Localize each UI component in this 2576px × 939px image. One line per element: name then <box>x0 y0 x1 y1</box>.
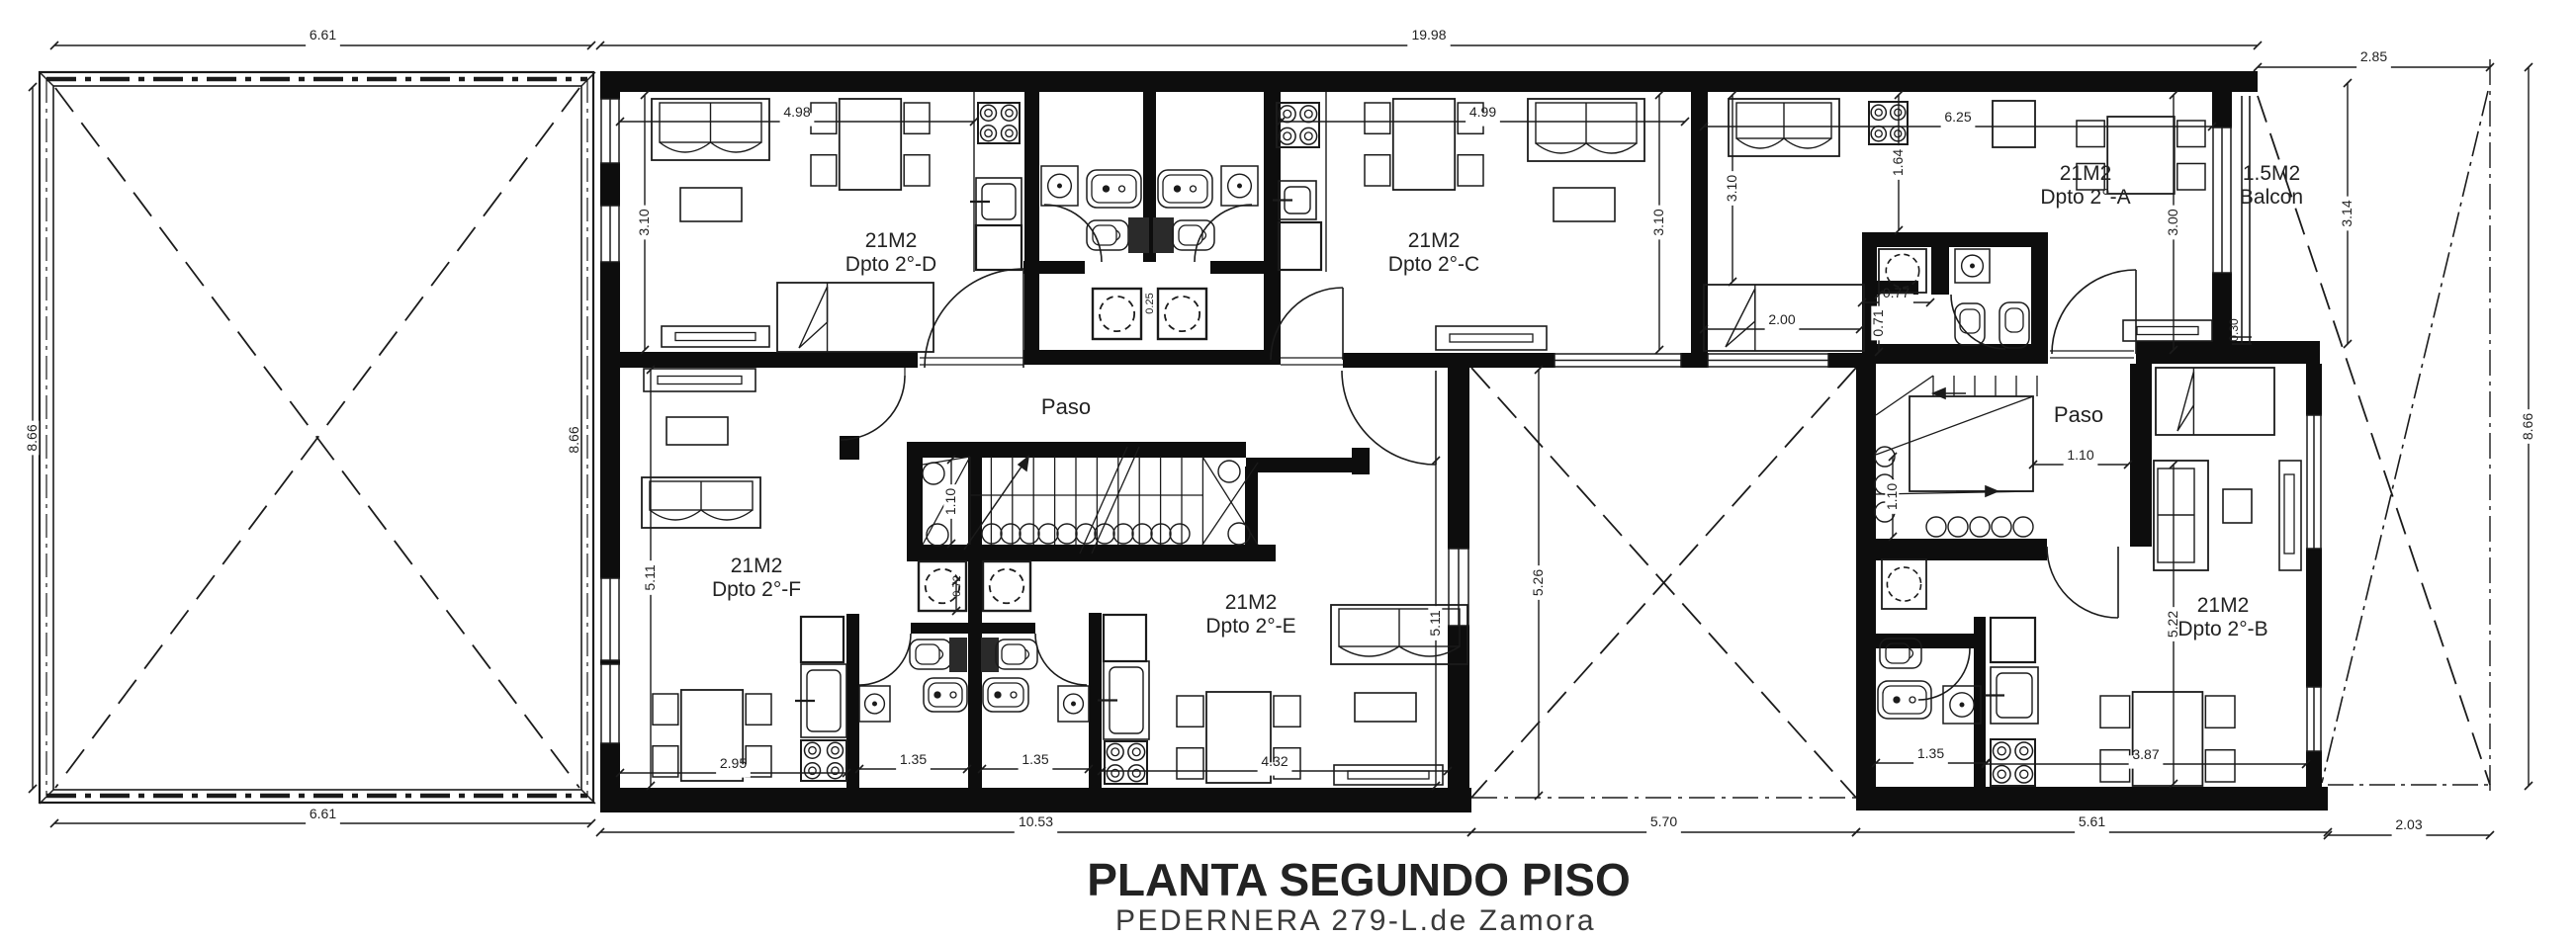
svg-text:Dpto 2°-D: Dpto 2°-D <box>845 253 936 276</box>
svg-text:2.03: 2.03 <box>2395 816 2422 832</box>
svg-text:4.99: 4.99 <box>1469 104 1496 120</box>
svg-text:1.10: 1.10 <box>942 488 958 515</box>
svg-text:5.70: 5.70 <box>1650 813 1677 829</box>
svg-text:Balcon: Balcon <box>2240 186 2303 209</box>
svg-text:5.11: 5.11 <box>1427 610 1443 636</box>
svg-text:5.11: 5.11 <box>642 564 658 590</box>
svg-text:0.30: 0.30 <box>2227 318 2241 342</box>
svg-text:Dpto 2°-B: Dpto 2°-B <box>2177 618 2267 640</box>
svg-text:21M2: 21M2 <box>2060 162 2112 185</box>
svg-text:1.10: 1.10 <box>1884 483 1900 510</box>
svg-text:0.77: 0.77 <box>1883 285 1910 300</box>
svg-text:Dpto 2°-A: Dpto 2°-A <box>2040 186 2130 209</box>
svg-text:6.61: 6.61 <box>310 806 336 821</box>
svg-text:21M2: 21M2 <box>731 555 783 577</box>
svg-text:21M2: 21M2 <box>865 229 918 252</box>
svg-text:1.35: 1.35 <box>900 751 927 767</box>
svg-text:PEDERNERA 279-L.de Zamora: PEDERNERA 279-L.de Zamora <box>1115 904 1596 937</box>
svg-text:0.25: 0.25 <box>1144 293 1156 313</box>
svg-text:8.66: 8.66 <box>566 426 581 453</box>
svg-text:3.10: 3.10 <box>636 209 652 235</box>
svg-text:1.35: 1.35 <box>1022 751 1048 767</box>
svg-text:0.72: 0.72 <box>951 575 963 596</box>
svg-text:6.61: 6.61 <box>310 27 336 43</box>
svg-text:2.95: 2.95 <box>720 755 747 771</box>
svg-text:1.10: 1.10 <box>2067 447 2093 463</box>
svg-text:Dpto 2°-C: Dpto 2°-C <box>1388 253 1479 276</box>
svg-text:3.87: 3.87 <box>2132 746 2159 762</box>
svg-text:4.32: 4.32 <box>1261 753 1288 769</box>
svg-text:1.64: 1.64 <box>1890 149 1906 176</box>
svg-text:3.10: 3.10 <box>1724 175 1739 202</box>
svg-text:10.53: 10.53 <box>1019 813 1053 829</box>
svg-text:5.61: 5.61 <box>2079 813 2105 829</box>
svg-text:2.85: 2.85 <box>2360 48 2387 64</box>
svg-text:PLANTA SEGUNDO PISO: PLANTA SEGUNDO PISO <box>1087 854 1630 905</box>
svg-text:21M2: 21M2 <box>2197 594 2250 617</box>
svg-text:0.71: 0.71 <box>1870 309 1886 336</box>
svg-text:8.66: 8.66 <box>24 424 40 451</box>
svg-text:21M2: 21M2 <box>1225 591 1278 614</box>
svg-text:5.26: 5.26 <box>1530 569 1546 596</box>
svg-text:3.00: 3.00 <box>2165 209 2180 235</box>
svg-text:2.00: 2.00 <box>1768 311 1795 327</box>
svg-text:8.66: 8.66 <box>2520 413 2535 440</box>
svg-text:Dpto 2°-F: Dpto 2°-F <box>712 578 801 601</box>
svg-text:Paso: Paso <box>2054 402 2103 427</box>
svg-text:Paso: Paso <box>1041 394 1091 419</box>
svg-text:1.35: 1.35 <box>1917 745 1944 761</box>
svg-text:6.25: 6.25 <box>1944 109 1971 125</box>
svg-text:1.5M2: 1.5M2 <box>2243 162 2300 185</box>
svg-text:Dpto 2°-E: Dpto 2°-E <box>1205 615 1295 638</box>
svg-text:4.98: 4.98 <box>783 104 810 120</box>
svg-text:3.14: 3.14 <box>2339 200 2354 226</box>
svg-text:21M2: 21M2 <box>1408 229 1461 252</box>
svg-text:19.98: 19.98 <box>1411 27 1446 43</box>
svg-text:3.10: 3.10 <box>1650 209 1666 235</box>
